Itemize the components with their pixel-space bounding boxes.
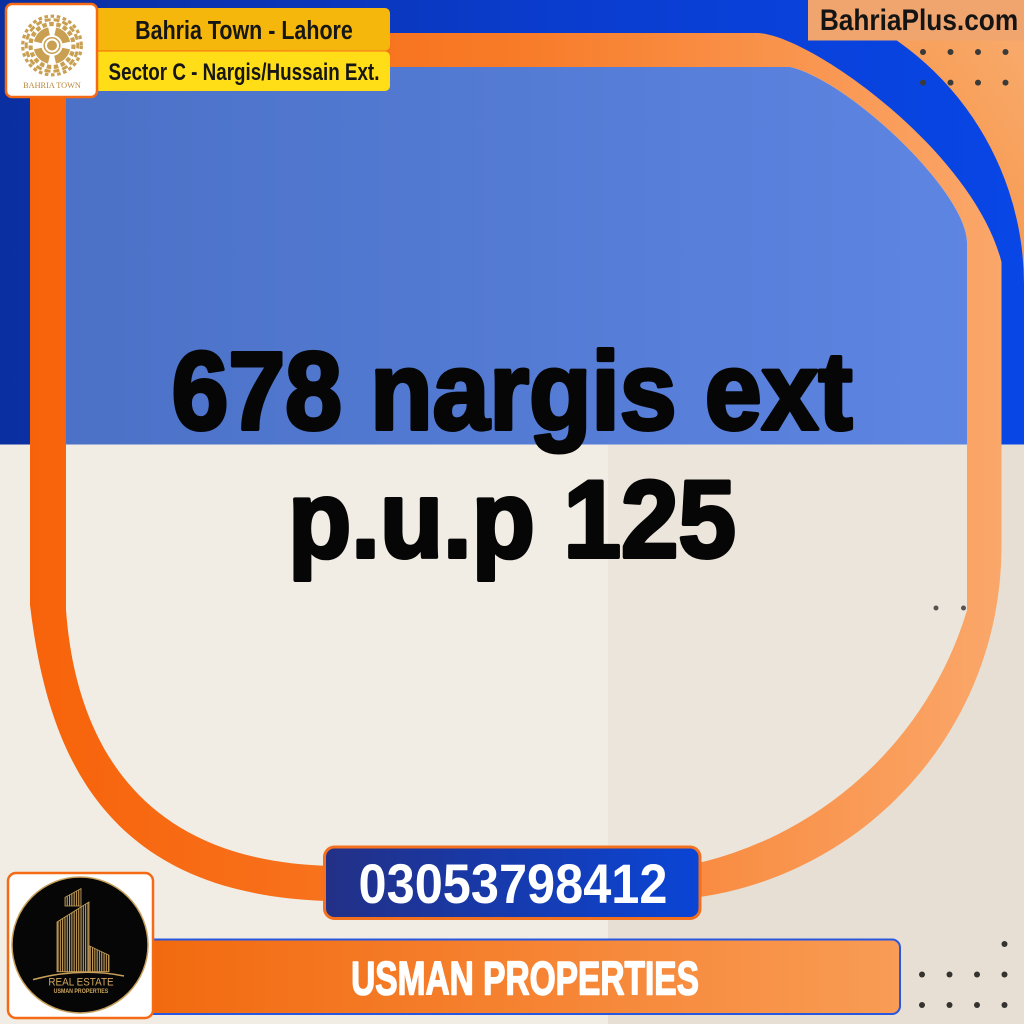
svg-text:p.u.p 125: p.u.p 125 (288, 457, 736, 581)
svg-text:REAL ESTATE: REAL ESTATE (48, 977, 113, 989)
svg-text:03053798412: 03053798412 (359, 854, 668, 916)
svg-text:Sector C - Nargis/Hussain Ext.: Sector C - Nargis/Hussain Ext. (109, 57, 380, 85)
svg-text:678 nargis ext: 678 nargis ext (172, 331, 853, 453)
svg-text:USMAN PROPERTIES: USMAN PROPERTIES (351, 952, 699, 1005)
svg-text:Bahria Town - Lahore: Bahria Town - Lahore (135, 16, 353, 45)
svg-text:USMAN PROPERTIES: USMAN PROPERTIES (54, 989, 109, 996)
svg-text:BahriaPlus.com: BahriaPlus.com (820, 4, 1018, 37)
svg-text:BAHRIA TOWN: BAHRIA TOWN (23, 80, 81, 90)
